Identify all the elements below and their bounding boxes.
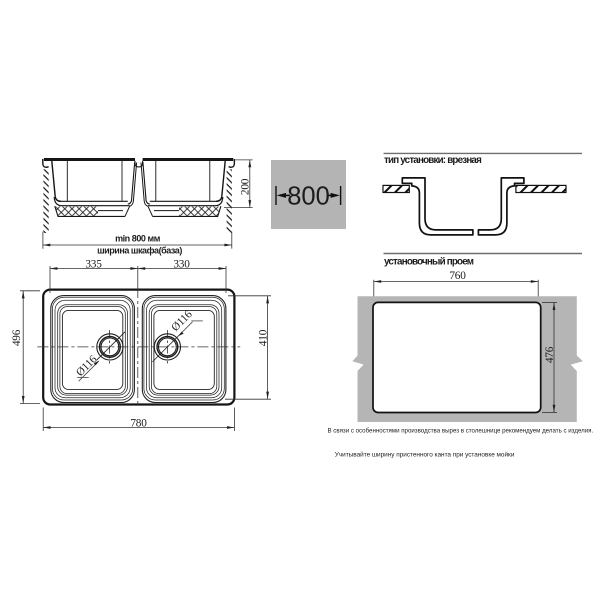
- svg-text:330: 330: [173, 258, 190, 270]
- svg-text:В связи с особенностями произв: В связи с особенностями производства выр…: [328, 428, 594, 435]
- svg-text:800: 800: [287, 182, 330, 210]
- svg-text:200: 200: [240, 178, 252, 195]
- svg-text:476: 476: [544, 346, 556, 363]
- svg-text:установочный проем: установочный проем: [384, 256, 474, 267]
- svg-text:335: 335: [85, 258, 102, 270]
- svg-text:Учитывайте ширину пристенного: Учитывайте ширину пристенного канта при …: [335, 450, 515, 458]
- svg-text:тип установки: врезная: тип установки: врезная: [384, 155, 482, 166]
- svg-text:780: 780: [130, 418, 147, 430]
- svg-text:410: 410: [257, 329, 269, 346]
- svg-text:ширина шкафа(база): ширина шкафа(база): [97, 246, 182, 256]
- svg-text:760: 760: [449, 270, 466, 282]
- svg-text:496: 496: [11, 329, 23, 346]
- svg-text:min 800 мм: min 800 мм: [115, 233, 161, 243]
